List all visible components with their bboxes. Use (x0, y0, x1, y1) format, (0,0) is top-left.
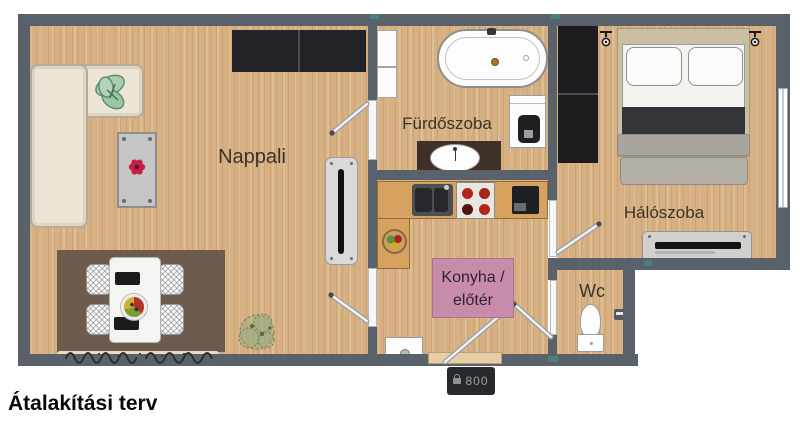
label-wc: Wc (568, 281, 616, 302)
label-bathroom: Fürdőszoba (382, 114, 512, 134)
plan-title: Átalakítási terv (8, 392, 157, 416)
door-swing-bedroom (558, 221, 602, 252)
door-swing-bathroom (329, 104, 367, 136)
floorplan-canvas: 800 (0, 0, 800, 428)
wall-lamp-icon (600, 32, 761, 46)
door-swing-hall (328, 292, 367, 321)
window-squiggle-trim (66, 353, 212, 363)
label-bedroom: Hálószoba (602, 203, 726, 223)
sofa-plant-icon (93, 71, 128, 112)
kitchen-label-line1: Konyha / (433, 266, 513, 289)
bush-plant-icon (239, 314, 274, 349)
flower-icon (129, 160, 145, 175)
kitchen-hall-label: Konyha / előtér (432, 258, 514, 318)
kitchen-label-line2: előtér (433, 289, 513, 312)
door-swing-wc (511, 301, 551, 337)
label-living-room: Nappali (192, 146, 312, 169)
